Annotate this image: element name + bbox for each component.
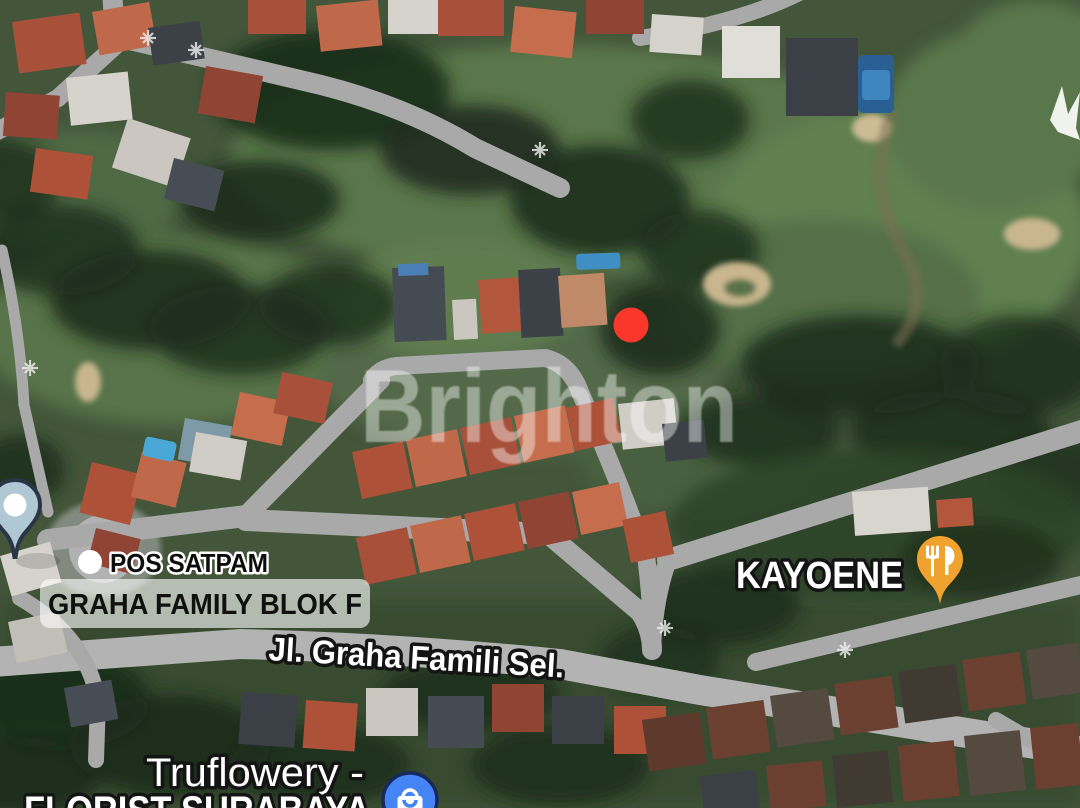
map-pin-icon[interactable] [0, 480, 60, 569]
truflowery-label-line2: FLORIST SURABAYA [24, 789, 370, 808]
graha-family-annotation: GRAHA FAMILY BLOK F [40, 579, 370, 628]
restaurant-pin-icon[interactable] [917, 536, 963, 604]
shopping-bag-icon[interactable] [383, 773, 437, 808]
pos-satpam-label: POS SATPAM [110, 548, 268, 578]
truflowery-poi[interactable]: Truflowery - FLORIST SURABAYA [24, 751, 437, 808]
kayoene-poi[interactable]: KAYOENE [736, 536, 963, 604]
pos-satpam-dot-icon [78, 550, 102, 574]
graha-family-label: GRAHA FAMILY BLOK F [48, 589, 362, 621]
map-viewport[interactable]: Brighton POS SATPAM GRAHA FAMILY BLOK F … [0, 0, 1080, 808]
pos-satpam-marker[interactable]: POS SATPAM [78, 548, 268, 578]
red-dot-marker[interactable] [614, 308, 649, 343]
brighton-watermark: Brighton [360, 349, 738, 465]
road-label: Jl. Graha Famili Sel. [268, 630, 566, 684]
kayoene-label: KAYOENE [736, 555, 903, 597]
